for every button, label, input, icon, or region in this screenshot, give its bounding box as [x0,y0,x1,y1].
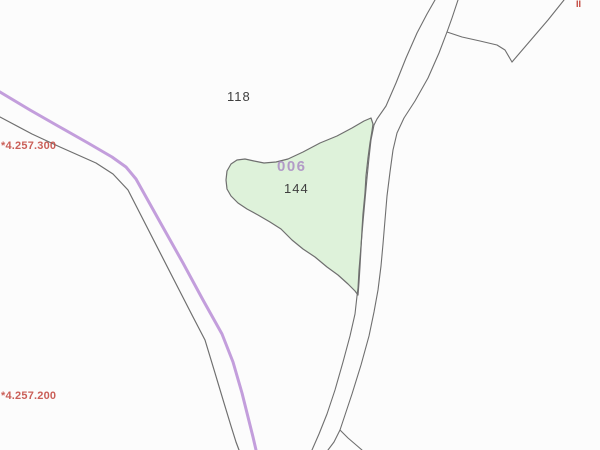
neighbor-parcel-118-label: 118 [227,90,251,103]
boundary-branch-top-right [447,32,512,62]
parcel-144-polygon[interactable] [226,118,373,295]
parcel-code-006-label: 006 [277,159,307,174]
grid-northing-4257200-label: *4.257.200 [1,391,56,402]
cadastral-map-viewport[interactable]: 118 006 144 *4.257.300 *4.257.200 II [0,0,600,450]
map-canvas [0,0,600,450]
boundary-corner-top-right [512,0,564,62]
grid-northing-4257300-label: *4.257.300 [1,141,56,152]
road-fork-branch [340,430,362,450]
edge-label-fragment: II [576,0,581,9]
parcel-number-144-label: 144 [284,182,309,195]
